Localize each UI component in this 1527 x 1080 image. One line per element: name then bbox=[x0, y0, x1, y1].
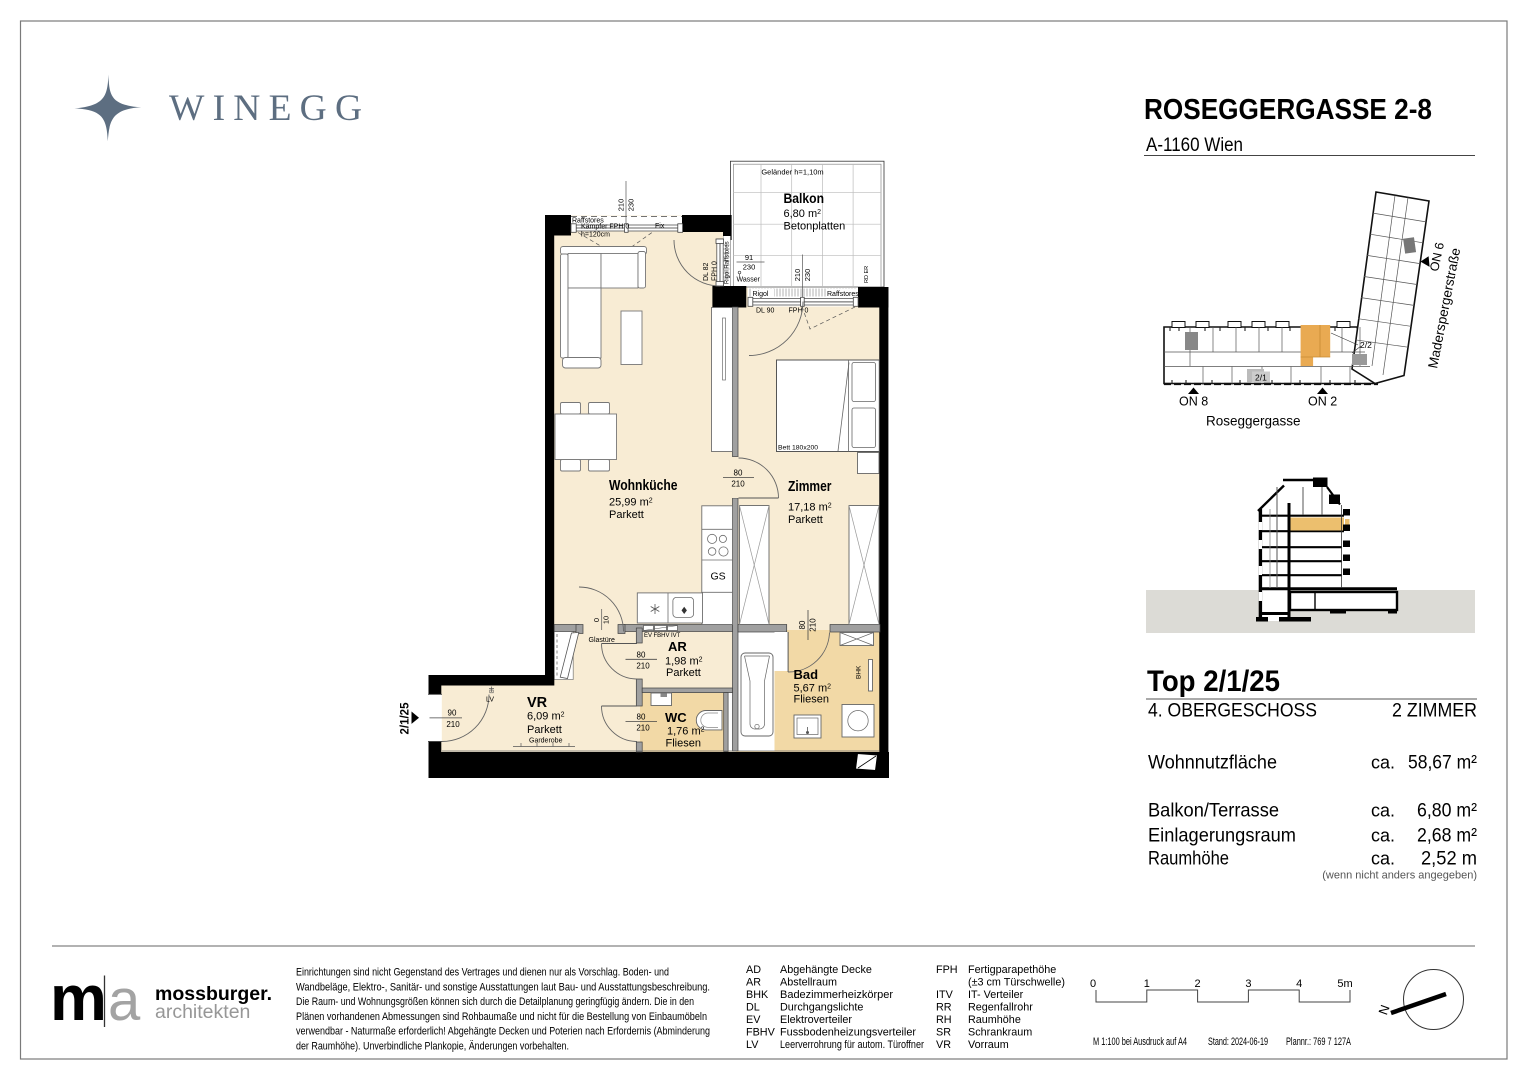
svg-text:WC: WC bbox=[665, 710, 687, 725]
svg-text:Garderobe: Garderobe bbox=[529, 738, 563, 745]
svg-text:3: 3 bbox=[1245, 978, 1251, 990]
svg-text:DL 82: DL 82 bbox=[703, 262, 710, 281]
svg-text:VR: VR bbox=[936, 1039, 951, 1051]
svg-text:Raumhöhe: Raumhöhe bbox=[1148, 848, 1229, 870]
svg-text:6,09 m2: 6,09 m2 bbox=[527, 711, 565, 723]
svg-text:A-1160 Wien: A-1160 Wien bbox=[1146, 134, 1243, 156]
svg-text:91: 91 bbox=[745, 253, 753, 262]
svg-text:AR: AR bbox=[668, 639, 687, 654]
svg-text:210: 210 bbox=[636, 661, 650, 670]
svg-text:4: 4 bbox=[1296, 978, 1302, 990]
svg-text:210: 210 bbox=[731, 480, 745, 489]
svg-text:Die Raum- und Wohnungsgrößen k: Die Raum- und Wohnungsgrößen können sich… bbox=[296, 996, 694, 1008]
svg-text:Fussbodenheizungsverteiler: Fussbodenheizungsverteiler bbox=[780, 1027, 916, 1039]
svg-text:m: m bbox=[50, 962, 106, 1034]
svg-text:25,99 m2: 25,99 m2 bbox=[609, 497, 653, 509]
svg-text:230: 230 bbox=[627, 199, 636, 212]
svg-text:Fliesen: Fliesen bbox=[794, 694, 829, 706]
svg-text:6,80 m²: 6,80 m² bbox=[1417, 800, 1477, 822]
svg-text:80: 80 bbox=[734, 469, 743, 478]
svg-text:RD ER: RD ER bbox=[864, 266, 870, 283]
svg-text:ca.: ca. bbox=[1371, 826, 1395, 846]
svg-text:230: 230 bbox=[743, 263, 756, 272]
svg-text:SR: SR bbox=[936, 1027, 951, 1039]
svg-text:Wohnnutzfläche: Wohnnutzfläche bbox=[1148, 752, 1277, 774]
svg-text:210: 210 bbox=[617, 199, 626, 212]
svg-text:Einlagerungsraum: Einlagerungsraum bbox=[1148, 825, 1296, 847]
svg-text:1: 1 bbox=[1144, 978, 1150, 990]
svg-text:210: 210 bbox=[809, 618, 818, 632]
svg-text:2 ZIMMER: 2 ZIMMER bbox=[1392, 700, 1477, 722]
svg-text:210: 210 bbox=[793, 269, 802, 282]
svg-text:Glastüre: Glastüre bbox=[589, 637, 616, 644]
svg-text:210: 210 bbox=[636, 724, 650, 733]
svg-text:Schrankraum: Schrankraum bbox=[968, 1027, 1032, 1039]
svg-text:BHK: BHK bbox=[746, 989, 769, 1001]
svg-text:(wenn nicht anders angegeben): (wenn nicht anders angegeben) bbox=[1322, 870, 1477, 882]
svg-text:1,98 m2: 1,98 m2 bbox=[665, 656, 703, 668]
svg-text:6,80 m2: 6,80 m2 bbox=[784, 208, 822, 220]
svg-text:(±3 cm Türschwelle): (±3 cm Türschwelle) bbox=[968, 977, 1065, 989]
svg-text:0: 0 bbox=[1090, 978, 1096, 990]
svg-text:Abstellraum: Abstellraum bbox=[780, 977, 837, 989]
svg-text:230: 230 bbox=[803, 269, 812, 282]
svg-text:2,68 m²: 2,68 m² bbox=[1417, 825, 1477, 847]
svg-text:Parkett: Parkett bbox=[609, 509, 644, 521]
svg-text:5m: 5m bbox=[1337, 978, 1352, 990]
svg-text:der Raumhöhe). Unverbindliche: der Raumhöhe). Unverbindliche Plankopie,… bbox=[296, 1041, 569, 1053]
svg-text:Fliesen: Fliesen bbox=[666, 738, 701, 750]
svg-text:Stand: 2024-06-19: Stand: 2024-06-19 bbox=[1208, 1036, 1268, 1048]
svg-text:90: 90 bbox=[448, 708, 457, 717]
svg-text:architekten: architekten bbox=[155, 1001, 250, 1023]
svg-text:M 1:100 bei Ausdruck auf A4: M 1:100 bei Ausdruck auf A4 bbox=[1093, 1036, 1187, 1048]
svg-text:Durchgangslichte: Durchgangslichte bbox=[780, 1002, 863, 1014]
svg-text:1,76 m2: 1,76 m2 bbox=[667, 726, 705, 738]
svg-text:FPH 0: FPH 0 bbox=[712, 261, 719, 281]
svg-text:DL: DL bbox=[746, 1002, 760, 1014]
svg-text:Balkon/Terrasse: Balkon/Terrasse bbox=[1148, 800, 1279, 822]
svg-text:Balkon: Balkon bbox=[784, 190, 825, 206]
svg-text:EV: EV bbox=[644, 633, 652, 639]
svg-text:Betonplatten: Betonplatten bbox=[784, 221, 846, 233]
svg-text:Kämpfer FPH 0: Kämpfer FPH 0 bbox=[581, 224, 629, 231]
svg-text:Badezimmerheizkörper: Badezimmerheizkörper bbox=[780, 989, 893, 1001]
svg-text:FPH 0: FPH 0 bbox=[789, 308, 809, 315]
svg-text:Plannr.: 769 7 127A: Plannr.: 769 7 127A bbox=[1286, 1036, 1352, 1048]
svg-text:GS: GS bbox=[711, 571, 726, 583]
svg-text:LV: LV bbox=[486, 697, 494, 704]
svg-text:80: 80 bbox=[637, 650, 646, 659]
svg-text:ITV: ITV bbox=[936, 989, 954, 1001]
svg-text:Rigol Raffstores: Rigol Raffstores bbox=[725, 241, 731, 284]
svg-text:verwendbar - Naturmaße erforde: verwendbar - Naturmaße erforderlich! Abg… bbox=[296, 1026, 710, 1038]
svg-text:Bett 180x200: Bett 180x200 bbox=[778, 445, 818, 452]
svg-text:Parkett: Parkett bbox=[527, 724, 562, 736]
svg-text:Wohnküche: Wohnküche bbox=[609, 478, 678, 494]
svg-text:ON 8: ON 8 bbox=[1179, 395, 1208, 409]
svg-text:Rigol: Rigol bbox=[753, 291, 769, 298]
svg-text:58,67 m²: 58,67 m² bbox=[1408, 752, 1477, 774]
svg-text:Top 2/1/25: Top 2/1/25 bbox=[1147, 665, 1280, 698]
svg-text:N: N bbox=[1375, 1003, 1392, 1017]
svg-text:210: 210 bbox=[446, 720, 460, 729]
svg-text:RH: RH bbox=[936, 1014, 952, 1026]
svg-text:Vorraum: Vorraum bbox=[968, 1039, 1009, 1051]
svg-text:17,18 m2: 17,18 m2 bbox=[788, 502, 832, 514]
svg-text:10: 10 bbox=[602, 616, 611, 624]
svg-text:Leerverrohrung für autom. Türo: Leerverrohrung für autom. Türoffner bbox=[780, 1039, 924, 1051]
svg-text:Zimmer: Zimmer bbox=[788, 479, 832, 495]
svg-text:EV: EV bbox=[746, 1014, 761, 1026]
svg-text:2/1/25: 2/1/25 bbox=[400, 702, 412, 735]
svg-text:Wandbeläge, Elektro-, Sanitär-: Wandbeläge, Elektro-, Sanitär- und sonst… bbox=[296, 981, 710, 993]
svg-text:Fertigparapethöhe: Fertigparapethöhe bbox=[968, 964, 1056, 976]
svg-text:80: 80 bbox=[798, 620, 807, 629]
svg-text:0: 0 bbox=[592, 618, 601, 622]
svg-text:Parkett: Parkett bbox=[788, 514, 823, 526]
svg-text:h=120cm: h=120cm bbox=[581, 232, 610, 239]
svg-text:2/2: 2/2 bbox=[1360, 340, 1372, 350]
svg-text:Bad: Bad bbox=[794, 667, 819, 682]
svg-text:Plänen vorhandenen Abmessungen: Plänen vorhandenen Abmessungen sind Rohb… bbox=[296, 1011, 707, 1023]
svg-text:IT- Verteiler: IT- Verteiler bbox=[968, 989, 1024, 1001]
svg-text:a: a bbox=[108, 968, 141, 1033]
svg-text:ca.: ca. bbox=[1371, 849, 1395, 869]
svg-text:Parkett: Parkett bbox=[666, 667, 701, 679]
svg-text:80: 80 bbox=[637, 713, 646, 722]
svg-text:2: 2 bbox=[1195, 978, 1201, 990]
svg-text:VR: VR bbox=[527, 695, 548, 711]
svg-text:Regenfallrohr: Regenfallrohr bbox=[968, 1002, 1033, 1014]
svg-text:2/1: 2/1 bbox=[1255, 373, 1267, 383]
svg-text:Raumhöhe: Raumhöhe bbox=[968, 1014, 1021, 1026]
svg-text:2,52 m: 2,52 m bbox=[1421, 848, 1477, 870]
svg-text:Wasser: Wasser bbox=[737, 277, 761, 284]
svg-text:BHK: BHK bbox=[856, 665, 863, 679]
svg-text:RR: RR bbox=[936, 1002, 952, 1014]
svg-text:ca.: ca. bbox=[1371, 801, 1395, 821]
svg-text:ca.: ca. bbox=[1371, 753, 1395, 773]
svg-text:ON 2: ON 2 bbox=[1308, 395, 1337, 409]
svg-text:Abgehängte Decke: Abgehängte Decke bbox=[780, 964, 872, 976]
svg-text:WINEGG: WINEGG bbox=[169, 88, 370, 129]
svg-text:LV: LV bbox=[746, 1039, 759, 1051]
svg-text:Geländer h=1,10m: Geländer h=1,10m bbox=[761, 168, 823, 177]
svg-text:Roseggergasse: Roseggergasse bbox=[1206, 414, 1301, 429]
svg-text:AD: AD bbox=[746, 964, 761, 976]
svg-text:FBHV: FBHV bbox=[746, 1027, 776, 1039]
svg-text:DL 90: DL 90 bbox=[756, 308, 775, 315]
svg-text:AR: AR bbox=[746, 977, 761, 989]
svg-text:Fix: Fix bbox=[655, 223, 665, 230]
svg-text:Elektroverteiler: Elektroverteiler bbox=[780, 1014, 852, 1026]
svg-text:FPH: FPH bbox=[936, 964, 958, 976]
svg-text:4. OBERGESCHOSS: 4. OBERGESCHOSS bbox=[1148, 700, 1317, 722]
svg-text:Einrichtungen sind nicht Gegen: Einrichtungen sind nicht Gegenstand des … bbox=[296, 967, 669, 979]
svg-text:ROSEGGERGASSE 2-8: ROSEGGERGASSE 2-8 bbox=[1144, 94, 1432, 126]
